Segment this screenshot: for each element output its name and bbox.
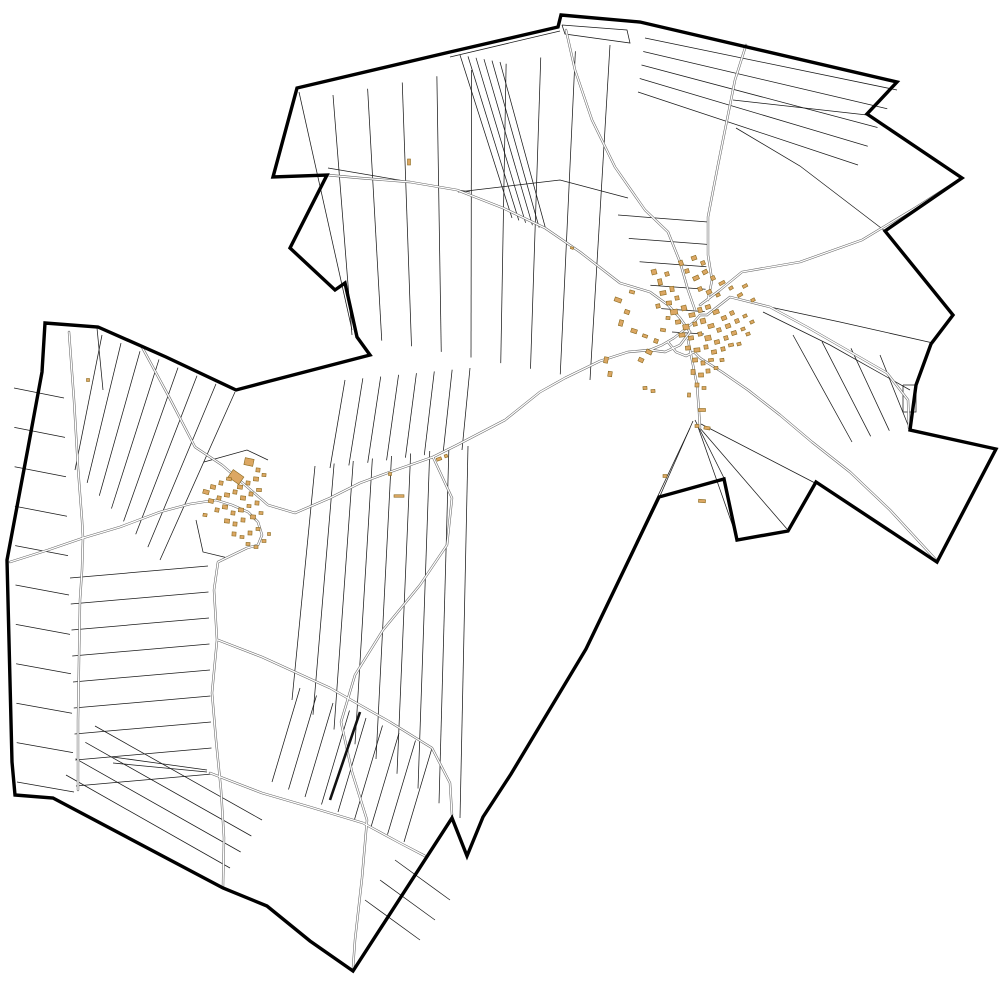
parcel-line-top-notch-strip: [562, 25, 630, 43]
building-footprint-right-village: [631, 328, 638, 334]
building-footprint-outlier: [394, 495, 404, 498]
parcel-line-ne-inner-1: [733, 100, 867, 115]
parcel-stripe-line: [365, 900, 420, 940]
parcel-stripe-line: [371, 733, 399, 827]
parcel-stripe-line: [16, 585, 70, 595]
building-footprint-right-village: [629, 290, 635, 294]
building-footprint-left-village: [224, 493, 230, 498]
building-footprint-right-village: [705, 335, 712, 341]
parcel-stripe-line: [484, 59, 532, 225]
building-footprint-right-village: [675, 320, 681, 325]
building-footprint-left-village: [256, 488, 261, 491]
building-footprint-right-village: [721, 315, 727, 321]
building-footprint-left-village: [203, 489, 210, 494]
parcel-line-nw-corner-tick: [97, 328, 103, 390]
building-footprint-right-village: [670, 309, 678, 315]
building-footprint-left-village: [259, 511, 263, 514]
parcel-stripe-line: [76, 759, 241, 852]
parcel-stripe-line: [71, 592, 209, 604]
parcel-stripe-line: [368, 377, 381, 463]
building-footprint-left-village: [231, 511, 235, 515]
parcel-stripe-line: [330, 380, 345, 468]
parcel-stripe-line: [531, 58, 541, 369]
parcel-stripe-line: [500, 62, 546, 230]
building-footprint-outlier: [695, 425, 699, 428]
building-footprint-right-village: [624, 309, 630, 314]
building-footprint-right-village: [675, 296, 680, 301]
building-footprint-right-village: [666, 301, 671, 305]
parcel-stripe-line: [880, 355, 908, 425]
building-footprint-right-village: [746, 332, 751, 336]
road-north-south-west: [69, 332, 83, 790]
parcel-stripe-line: [642, 65, 878, 128]
parcel-line-east-inner-2: [763, 312, 910, 390]
parcel-stripe-line: [272, 688, 300, 782]
building-footprint-right-village: [608, 371, 613, 377]
parcel-stripe-line: [85, 742, 251, 836]
building-footprint-left-village: [246, 481, 250, 485]
building-footprint-left-village: [248, 531, 252, 535]
building-footprint-right-village: [705, 304, 711, 309]
parcel-stripe-line: [17, 782, 74, 792]
parcel-stripe-line: [74, 696, 211, 708]
building-footprint-left-village: [238, 508, 243, 512]
building-footprint-outlier: [408, 159, 411, 165]
building-footprint-left-village: [247, 504, 251, 507]
parcel-line-needle-sliver-b: [113, 763, 207, 772]
building-footprint-right-village: [653, 338, 658, 343]
building-footprint-right-village: [725, 323, 731, 328]
building-footprint-left-village: [256, 468, 260, 472]
road-left-village-south-casing: [212, 548, 247, 886]
parcel-stripe-line: [560, 51, 575, 374]
building-footprint-outlier: [651, 389, 655, 392]
building-footprint-right-village: [681, 305, 687, 311]
building-footprint-right-village: [694, 348, 700, 353]
building-footprint-left-village: [237, 485, 243, 490]
parcel-stripe-line: [305, 703, 333, 797]
parcel-line-mid-upper-long: [458, 180, 628, 198]
building-footprint-left-village: [233, 490, 238, 495]
building-footprint-outlier: [698, 499, 705, 503]
building-footprint-outlier: [699, 409, 706, 412]
road-network-layer: [10, 30, 962, 968]
building-footprint-right-village: [651, 269, 657, 275]
building-footprint-right-village: [701, 361, 705, 365]
building-footprint-right-village: [656, 304, 661, 309]
building-footprint-left-village: [217, 496, 222, 501]
building-footprint-right-village: [728, 343, 734, 347]
parcel-stripe-line: [72, 618, 210, 630]
building-footprint-left-village: [210, 485, 216, 490]
parcel-stripe-line: [15, 506, 67, 516]
building-footprint-right-village: [670, 286, 675, 292]
building-footprint-right-village: [697, 307, 702, 313]
parcel-stripe-line: [14, 427, 65, 437]
road-north-village-n2: [708, 45, 746, 300]
parcel-stripe-line: [460, 446, 468, 818]
parcel-line-left-village-outline-s: [196, 520, 228, 558]
parcel-stripe-line: [471, 70, 472, 358]
building-footprint-left-village: [255, 501, 259, 505]
parcel-stripe-line: [629, 238, 707, 244]
parcel-stripe-line: [424, 371, 434, 455]
parcel-line-petal-4: [701, 424, 815, 483]
building-footprint-outlier: [643, 386, 647, 389]
parcel-stripe-line: [66, 775, 230, 868]
building-footprint-right-village: [688, 336, 694, 341]
parcel-stripe-line: [645, 38, 897, 90]
building-footprint-right-village: [706, 369, 710, 373]
building-footprint-right-village: [660, 328, 665, 332]
parcel-stripe-line: [355, 726, 383, 820]
building-footprint-right-village: [700, 318, 706, 324]
parcel-lines-layer: [97, 25, 933, 772]
parcel-stripe-line: [404, 748, 432, 842]
parcel-stripe-line: [387, 375, 399, 460]
parcel-stripe-line: [292, 466, 315, 700]
building-footprint-right-village: [685, 269, 690, 274]
building-footprint-left-village: [215, 508, 220, 513]
parcel-stripe-line: [148, 384, 216, 547]
parcel-stripe-fields-layer: [14, 38, 908, 940]
building-footprint-right-village: [691, 255, 697, 260]
parcel-stripe-line: [476, 58, 526, 223]
parcel-stripe-line: [793, 335, 852, 442]
building-footprint-outlier: [704, 426, 710, 430]
building-footprint-right-village: [742, 284, 748, 289]
building-footprint-right-village: [731, 330, 737, 335]
parcel-line-petal-3: [699, 427, 787, 529]
building-footprint-left-village: [256, 527, 260, 530]
building-footprint-right-village: [642, 334, 648, 339]
cadastral-map-canvas: [0, 0, 1000, 1000]
parcel-stripe-line: [368, 89, 382, 341]
parcel-stripe-line: [289, 696, 317, 790]
parcel-stripe-line: [822, 342, 871, 437]
building-footprint-right-village: [702, 387, 706, 390]
parcel-stripe-line: [160, 392, 235, 560]
building-footprint-right-village: [711, 350, 717, 355]
parcel-stripe-line: [17, 743, 73, 753]
road-wedge-west-casing: [341, 457, 452, 968]
building-footprint-right-village: [714, 339, 720, 344]
building-footprint-left-village: [249, 492, 253, 496]
parcel-stripe-line: [492, 61, 539, 228]
building-footprint-right-village: [737, 342, 742, 346]
building-footprint-left-village: [226, 477, 231, 481]
building-footprint-right-village: [737, 292, 743, 297]
building-footprint-right-village: [692, 358, 697, 362]
building-footprint-right-village: [751, 298, 756, 303]
parcel-stripe-line: [397, 454, 411, 774]
building-footprint-outlier: [436, 457, 442, 462]
road-southwest-entry: [10, 500, 216, 562]
road-wedge-west: [341, 457, 452, 968]
building-footprint-left-village: [203, 513, 207, 517]
building-footprint-right-village: [618, 320, 623, 327]
building-footprint-right-village: [614, 297, 622, 303]
building-footprint-right-village: [741, 327, 746, 331]
building-footprint-left-village: [250, 515, 255, 519]
building-footprint-right-village: [695, 383, 699, 387]
building-footprint-right-village: [685, 346, 690, 350]
parcel-stripe-line: [70, 566, 208, 578]
parcel-stripe-line: [439, 449, 449, 804]
building-footprint-left-village: [244, 458, 254, 467]
building-footprint-left-village: [253, 477, 258, 481]
parcel-stripe-line: [99, 351, 140, 495]
parcel-stripe-line: [16, 703, 72, 713]
building-footprint-right-village: [720, 358, 724, 362]
building-footprint-right-village: [687, 393, 690, 397]
building-footprint-right-village: [638, 357, 644, 363]
building-footprint-right-village: [691, 370, 695, 375]
building-footprint-left-village: [254, 546, 258, 549]
building-footprint-right-village: [729, 310, 734, 315]
parcel-stripe-line: [75, 335, 102, 470]
building-footprint-right-village: [698, 373, 703, 377]
parcel-stripe-line: [355, 459, 372, 745]
parcel-stripe-line: [75, 722, 212, 734]
building-footprint-left-village: [232, 532, 236, 536]
building-footprint-right-village: [604, 357, 609, 364]
building-footprint-left-village: [240, 496, 245, 501]
building-footprint-right-village: [704, 345, 709, 350]
parcel-stripe-line: [388, 741, 416, 835]
building-footprint-right-village: [679, 333, 685, 338]
building-footprint-left-village: [241, 518, 245, 522]
building-footprint-right-village: [708, 358, 713, 362]
building-footprint-right-village: [708, 323, 715, 328]
building-footprint-right-village: [702, 269, 708, 275]
building-footprint-right-village: [692, 275, 699, 281]
parcel-stripe-line: [405, 373, 416, 458]
parcel-stripe-line: [402, 83, 411, 347]
parcel-stripe-line: [618, 215, 708, 222]
building-footprint-left-village: [233, 522, 237, 526]
building-footprint-left-village: [268, 533, 271, 536]
building-footprint-right-village: [666, 316, 670, 319]
building-footprint-right-village: [683, 324, 690, 330]
commune-boundary-outline: [7, 15, 996, 971]
building-footprint-outlier: [444, 454, 448, 458]
building-footprint-right-village: [698, 332, 703, 337]
building-footprint-outlier: [663, 475, 667, 478]
building-footprint-right-village: [657, 279, 662, 286]
parcel-stripe-line: [437, 76, 441, 352]
parcel-stripe-line: [851, 348, 889, 430]
building-footprint-right-village: [700, 260, 705, 265]
building-footprint-left-village: [219, 481, 224, 486]
road-left-village-south: [212, 548, 247, 886]
building-footprint-left-village: [208, 499, 214, 504]
parcel-stripe-line: [590, 45, 610, 380]
building-footprint-right-village: [689, 312, 696, 317]
building-footprint-left-village: [224, 519, 229, 524]
parcel-stripe-line: [87, 343, 121, 483]
building-footprint-right-village: [664, 271, 669, 276]
building-footprint-left-village: [240, 535, 244, 538]
parcel-stripe-line: [638, 92, 858, 165]
building-footprint-right-village: [697, 286, 702, 291]
parcel-stripe-line: [72, 644, 209, 656]
parcel-line-inner-top-left: [450, 31, 560, 57]
building-footprint-right-village: [750, 320, 755, 324]
road-northeast-exit: [700, 178, 962, 305]
building-footprint-right-village: [724, 336, 729, 341]
parcel-stripe-line: [640, 79, 868, 147]
parcel-stripe-line: [650, 285, 705, 289]
parcel-stripe-line: [16, 664, 71, 674]
building-footprint-left-village: [262, 540, 266, 543]
building-footprint-right-village: [734, 318, 739, 323]
parcel-stripe-line: [349, 378, 363, 465]
parcel-stripe-line: [443, 370, 452, 453]
commune-boundary-polygon: [7, 15, 996, 971]
parcel-stripe-line: [73, 670, 210, 682]
building-footprint-right-village: [743, 314, 748, 318]
parcel-stripe-line: [376, 456, 392, 759]
road-north-village-n2-casing: [708, 45, 746, 300]
building-footprint-right-village: [721, 347, 726, 352]
parcel-stripe-line: [75, 748, 211, 760]
building-footprint-right-village: [729, 286, 734, 291]
road-north-village-n1: [566, 30, 695, 310]
building-footprint-right-village: [693, 322, 698, 327]
road-ladder-south-rail: [210, 773, 425, 856]
building-footprint-right-village: [714, 366, 718, 369]
parcel-line-needle-sliver-a: [113, 757, 207, 770]
road-north-south-west-casing: [69, 332, 83, 790]
road-north-village-n1-casing: [566, 30, 695, 310]
building-footprint-outlier: [389, 473, 392, 476]
parcel-stripe-line: [640, 262, 707, 267]
parcel-stripe-line: [111, 359, 159, 508]
building-footprints-layer: [87, 159, 756, 549]
road-northeast-exit-casing: [700, 178, 962, 305]
building-footprint-outlier: [87, 379, 90, 382]
parcel-stripe-line: [468, 56, 519, 220]
building-footprint-right-village: [716, 327, 721, 332]
building-footprint-left-village: [246, 542, 250, 545]
parcel-stripe-line: [16, 624, 70, 634]
parcel-stripe-line: [418, 451, 430, 789]
building-footprint-right-village: [660, 291, 667, 296]
building-footprint-left-village: [222, 505, 228, 510]
building-footprint-left-village: [262, 473, 266, 476]
parcel-line-ne-inner-2: [736, 128, 885, 231]
cadastral-map-page: [0, 0, 1000, 1000]
